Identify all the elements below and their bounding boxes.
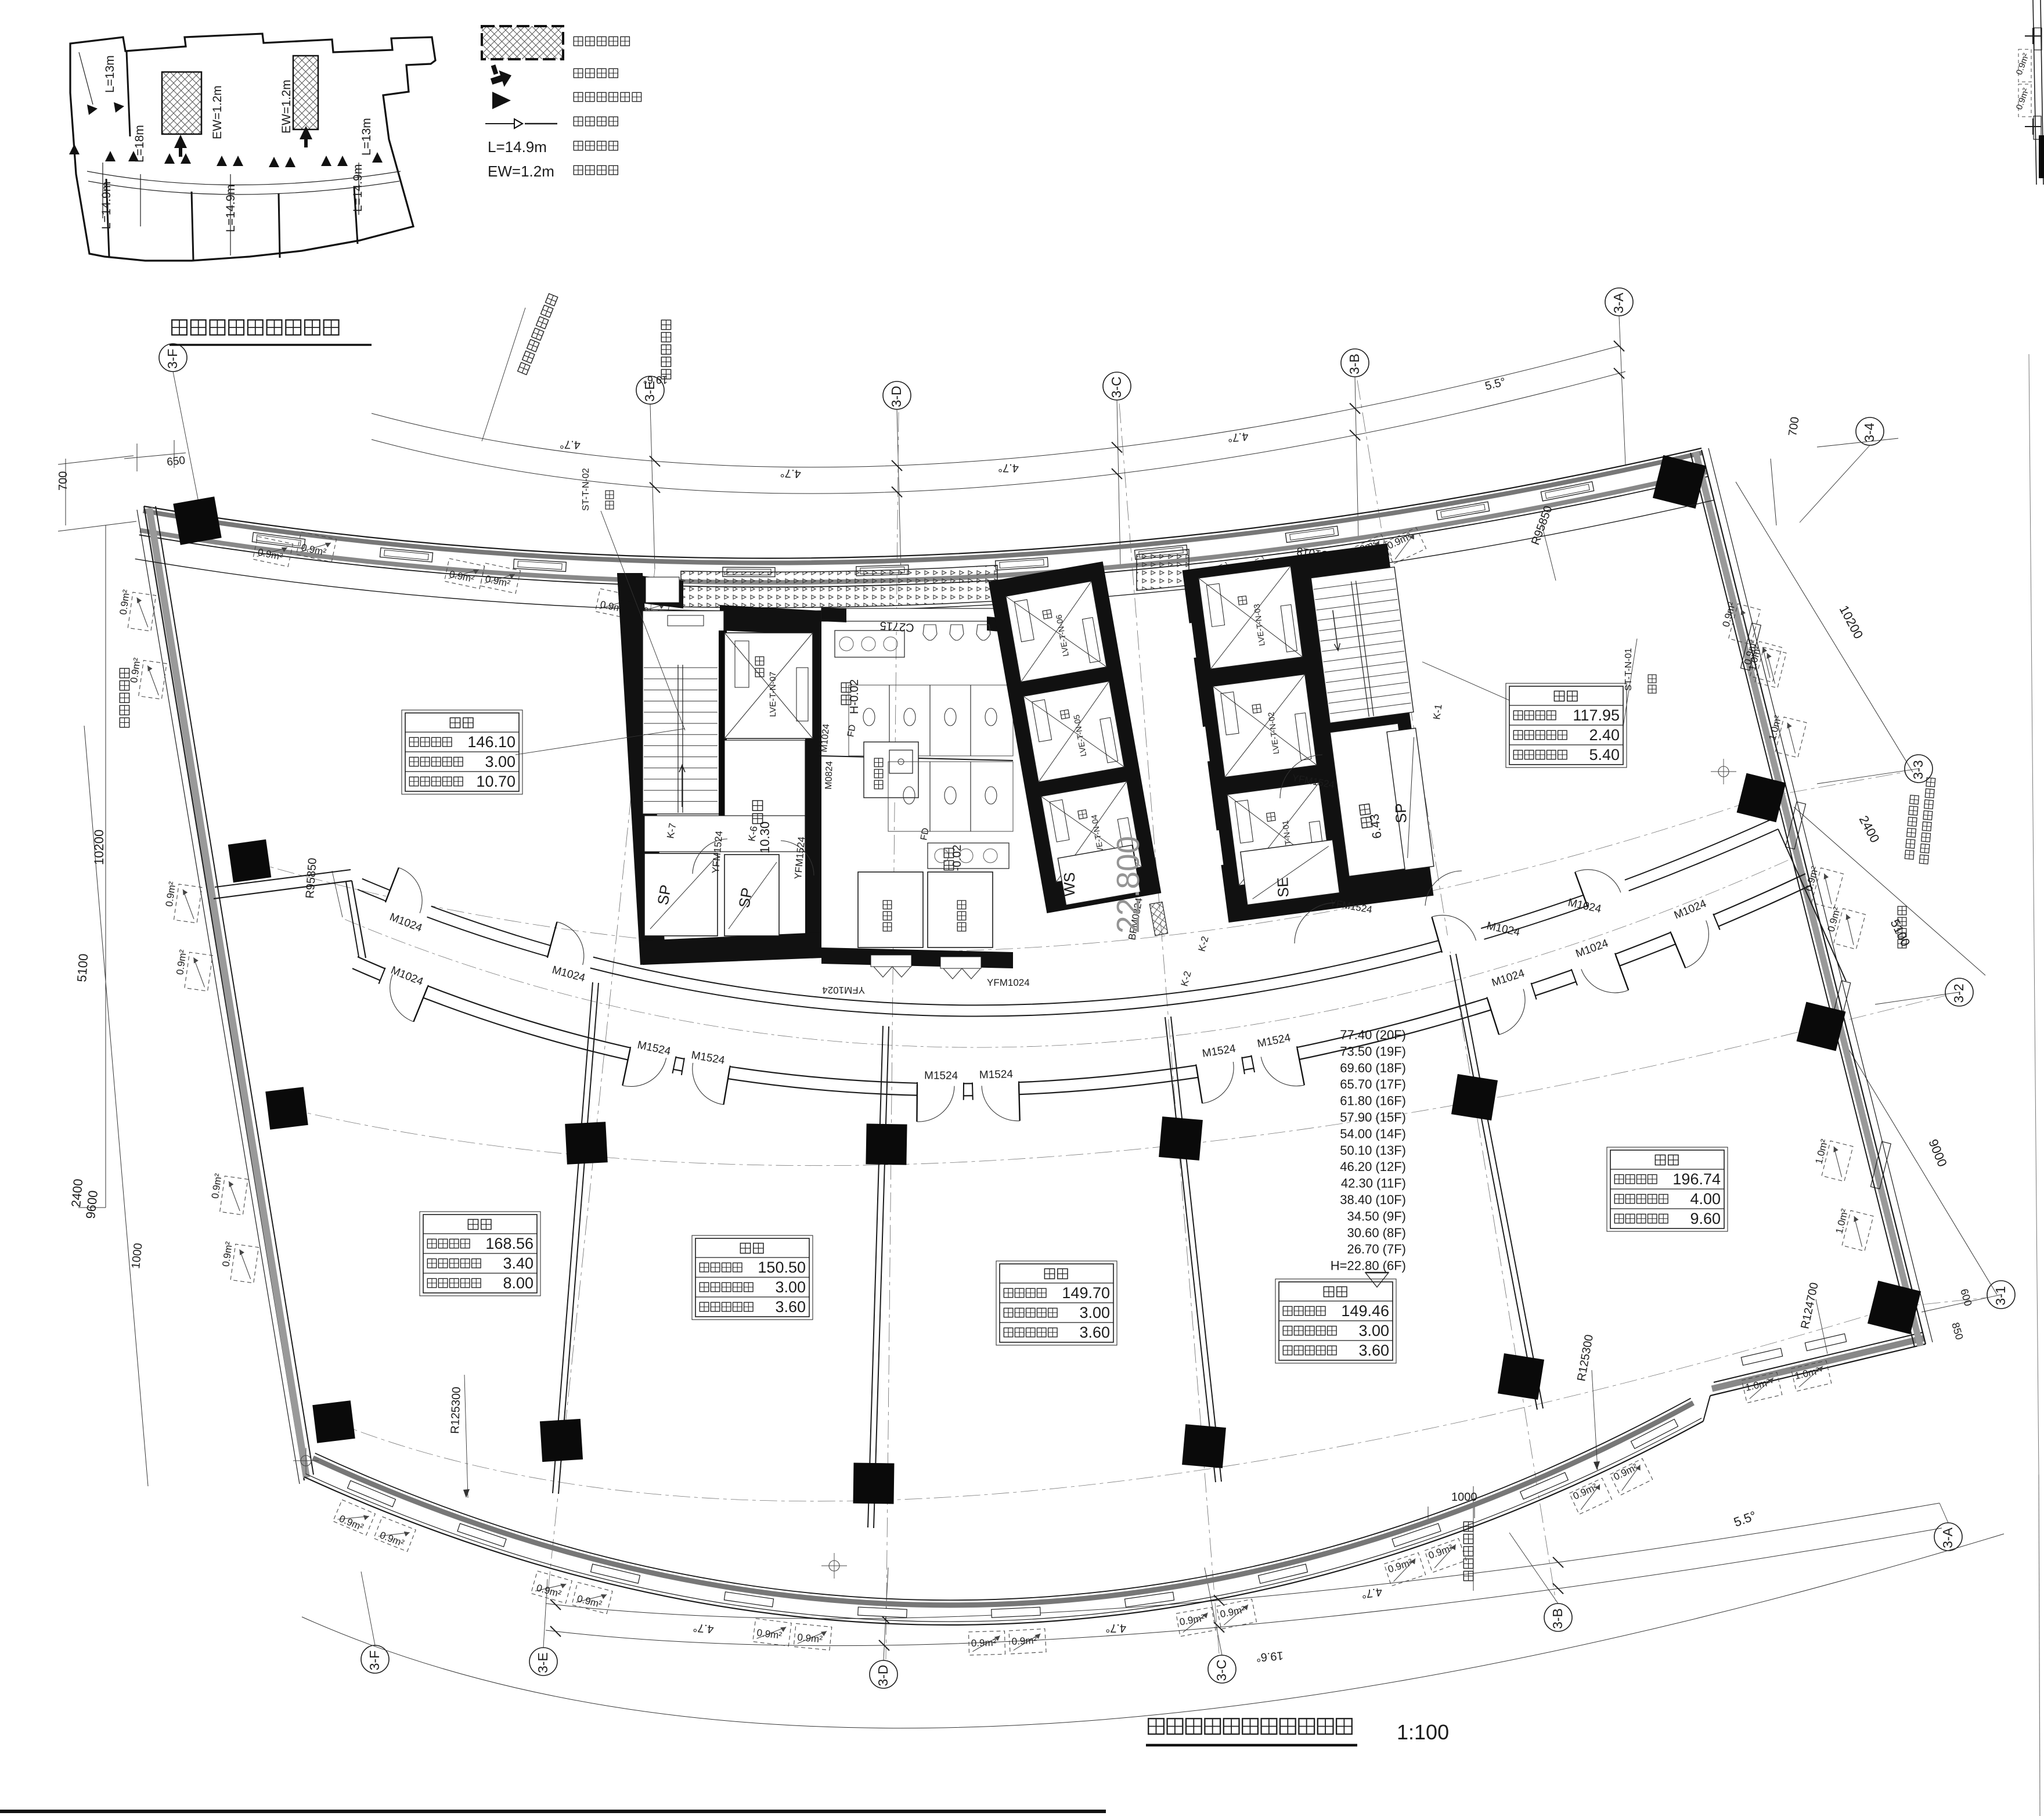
svg-text:149.46: 149.46 bbox=[1341, 1302, 1389, 1320]
svg-text:M1524: M1524 bbox=[924, 1069, 958, 1082]
svg-text:3-4: 3-4 bbox=[1862, 423, 1877, 442]
svg-text:1000: 1000 bbox=[129, 1242, 145, 1270]
svg-text:H=22.80 (6F): H=22.80 (6F) bbox=[1331, 1259, 1406, 1273]
svg-text:4.7°: 4.7° bbox=[693, 1621, 715, 1635]
svg-text:54.00 (14F): 54.00 (14F) bbox=[1340, 1126, 1406, 1141]
svg-text:700: 700 bbox=[1786, 416, 1801, 437]
svg-text:168.56: 168.56 bbox=[485, 1235, 533, 1252]
svg-text:3-F: 3-F bbox=[165, 349, 180, 369]
svg-text:5.40: 5.40 bbox=[1589, 746, 1620, 763]
svg-text:ST-T-N-01: ST-T-N-01 bbox=[1624, 648, 1634, 691]
svg-text:38.40 (10F): 38.40 (10F) bbox=[1340, 1192, 1406, 1207]
svg-text:EW=1.2m: EW=1.2m bbox=[488, 163, 554, 180]
svg-text:22.800: 22.800 bbox=[1110, 836, 1146, 934]
svg-text:0.9m²: 0.9m² bbox=[971, 1637, 997, 1649]
svg-text:L=14.9m: L=14.9m bbox=[100, 182, 113, 229]
svg-text:4.7°: 4.7° bbox=[1105, 1622, 1126, 1634]
svg-text:57.90 (15F): 57.90 (15F) bbox=[1340, 1110, 1406, 1125]
svg-text:8.00: 8.00 bbox=[503, 1274, 533, 1292]
svg-text:R125300: R125300 bbox=[449, 1386, 463, 1434]
svg-text:50.10 (13F): 50.10 (13F) bbox=[1340, 1143, 1406, 1158]
svg-text:3-A: 3-A bbox=[1611, 292, 1626, 313]
svg-text:46.20 (12F): 46.20 (12F) bbox=[1340, 1159, 1406, 1174]
svg-text:9.60: 9.60 bbox=[1690, 1210, 1721, 1227]
svg-text:ST-T-N-02: ST-T-N-02 bbox=[581, 468, 591, 511]
svg-text:42.30 (11F): 42.30 (11F) bbox=[1341, 1176, 1406, 1191]
svg-text:SP: SP bbox=[1391, 803, 1409, 824]
svg-text:34.50 (9F): 34.50 (9F) bbox=[1347, 1209, 1407, 1223]
svg-text:M1524: M1524 bbox=[979, 1068, 1014, 1082]
svg-text:4.7°: 4.7° bbox=[1227, 430, 1249, 444]
svg-text:650: 650 bbox=[166, 455, 186, 469]
svg-text:3.00: 3.00 bbox=[1358, 1322, 1389, 1339]
svg-text:L=14.9m: L=14.9m bbox=[488, 138, 547, 156]
svg-text:77.40 (20F): 77.40 (20F) bbox=[1340, 1028, 1406, 1042]
svg-text:SE: SE bbox=[1274, 877, 1292, 898]
svg-text:M0824: M0824 bbox=[824, 761, 835, 790]
svg-text:3.60: 3.60 bbox=[1358, 1342, 1389, 1359]
svg-text:EW=1.2m: EW=1.2m bbox=[211, 85, 224, 139]
svg-text:196.74: 196.74 bbox=[1672, 1170, 1721, 1188]
svg-text:WS: WS bbox=[1061, 872, 1078, 896]
svg-text:3-B: 3-B bbox=[1550, 1608, 1565, 1629]
svg-text:3-D: 3-D bbox=[875, 1664, 891, 1686]
svg-text:73.50 (19F): 73.50 (19F) bbox=[1340, 1044, 1406, 1058]
svg-text:2.40: 2.40 bbox=[1589, 726, 1620, 744]
svg-text:4.7°: 4.7° bbox=[560, 438, 581, 451]
svg-text:3.40: 3.40 bbox=[503, 1255, 533, 1272]
svg-text:4.00: 4.00 bbox=[1690, 1190, 1721, 1208]
svg-text:YFM1024: YFM1024 bbox=[822, 985, 865, 996]
svg-text:117.95: 117.95 bbox=[1573, 707, 1620, 724]
svg-text:SP: SP bbox=[735, 887, 756, 909]
svg-text:4.7°: 4.7° bbox=[998, 461, 1019, 474]
svg-text:19.6°: 19.6° bbox=[1256, 1649, 1284, 1664]
svg-text:146.10: 146.10 bbox=[467, 733, 515, 751]
svg-text:19.6°: 19.6° bbox=[643, 374, 668, 385]
svg-text:3-1: 3-1 bbox=[1993, 1286, 2008, 1305]
svg-text:69.60 (18F): 69.60 (18F) bbox=[1340, 1061, 1406, 1075]
svg-text:150.50: 150.50 bbox=[758, 1259, 806, 1276]
svg-text:9600: 9600 bbox=[83, 1190, 100, 1219]
svg-text:700: 700 bbox=[57, 471, 70, 491]
svg-text:10.30: 10.30 bbox=[758, 821, 772, 853]
svg-text:3-D: 3-D bbox=[889, 385, 904, 407]
svg-text:3.00: 3.00 bbox=[485, 753, 515, 770]
svg-text:SP: SP bbox=[654, 884, 675, 906]
svg-text:1000: 1000 bbox=[1451, 1491, 1477, 1504]
svg-text:3-C: 3-C bbox=[1109, 376, 1124, 398]
svg-text:4.7°: 4.7° bbox=[780, 466, 801, 480]
svg-text:3-2: 3-2 bbox=[1951, 983, 1966, 1003]
svg-text:5100: 5100 bbox=[74, 953, 91, 983]
svg-text:65.70 (17F): 65.70 (17F) bbox=[1340, 1077, 1406, 1091]
svg-text:3.00: 3.00 bbox=[775, 1278, 806, 1296]
svg-text:L=13m: L=13m bbox=[360, 118, 373, 156]
svg-text:149.70: 149.70 bbox=[1062, 1284, 1110, 1302]
svg-text:K-1: K-1 bbox=[1431, 704, 1444, 720]
svg-text:10200: 10200 bbox=[92, 830, 106, 865]
svg-text:3.00: 3.00 bbox=[1079, 1304, 1110, 1321]
svg-text:3-A: 3-A bbox=[1940, 1527, 1955, 1548]
svg-text:30.60 (8F): 30.60 (8F) bbox=[1347, 1226, 1407, 1240]
svg-text:3-B: 3-B bbox=[1347, 354, 1362, 374]
svg-text:61.80 (16F): 61.80 (16F) bbox=[1340, 1094, 1406, 1108]
svg-text:3-F: 3-F bbox=[367, 1651, 382, 1671]
svg-text:L=18m: L=18m bbox=[133, 125, 146, 163]
svg-text:L=13m: L=13m bbox=[103, 55, 117, 93]
svg-text:3-C: 3-C bbox=[1214, 1659, 1229, 1681]
svg-text:YFM1024: YFM1024 bbox=[987, 977, 1030, 988]
svg-text:H-0.02: H-0.02 bbox=[848, 679, 861, 714]
svg-text:3.60: 3.60 bbox=[775, 1298, 806, 1316]
svg-text:L=14.9m: L=14.9m bbox=[224, 185, 237, 232]
svg-text:3-3: 3-3 bbox=[1910, 760, 1926, 779]
svg-text:10.70: 10.70 bbox=[476, 773, 515, 790]
svg-text:LVE-T-N-07: LVE-T-N-07 bbox=[768, 672, 778, 717]
svg-text:2400: 2400 bbox=[69, 1178, 85, 1208]
svg-text:L=14.9m: L=14.9m bbox=[351, 164, 365, 212]
svg-text:EW=1.2m: EW=1.2m bbox=[280, 80, 293, 134]
svg-text:0.9m²: 0.9m² bbox=[1011, 1635, 1037, 1647]
svg-text:3-E: 3-E bbox=[535, 1652, 550, 1673]
svg-text:3.60: 3.60 bbox=[1079, 1324, 1110, 1341]
svg-text:26.70 (7F): 26.70 (7F) bbox=[1347, 1242, 1407, 1256]
svg-text:1:100: 1:100 bbox=[1397, 1720, 1449, 1744]
